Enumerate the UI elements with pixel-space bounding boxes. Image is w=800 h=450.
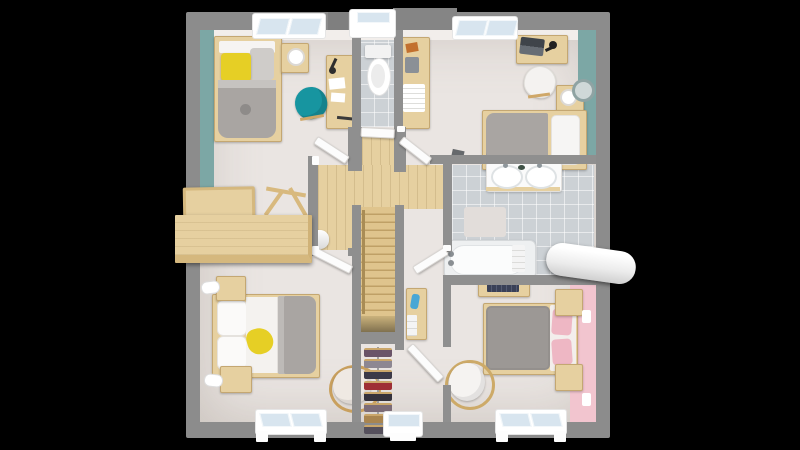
window-pane (259, 413, 291, 427)
wall-socket (582, 393, 591, 406)
round-mirror (572, 79, 595, 102)
nightstand (216, 276, 246, 301)
wall-bedroom4-left-lower (443, 385, 451, 422)
staircase-depth-shadow (361, 316, 395, 332)
tub-tray (512, 245, 525, 272)
tub-faucet (448, 260, 454, 266)
hanging-garment (364, 392, 392, 401)
window-pane (256, 18, 290, 35)
desk-paper (328, 77, 345, 90)
door-jamb (312, 156, 319, 165)
soap-dish (518, 165, 525, 170)
bed-pillow (217, 300, 247, 336)
door-wc (360, 127, 394, 139)
toilet-tank (365, 45, 391, 58)
window-sill-tab (256, 431, 268, 442)
wall-bathroom-left (443, 155, 452, 252)
hanging-garment (364, 348, 392, 357)
duvet-cushion (240, 104, 251, 115)
window-sill-tab (390, 433, 416, 441)
gray-pillow (250, 48, 274, 80)
window-sill-tab (496, 431, 508, 442)
vanity-wood-trim (486, 187, 560, 191)
table-lamp (287, 48, 305, 66)
wall-stairwell-right (395, 205, 404, 350)
landing-wood-band (318, 165, 443, 209)
window-pane (485, 20, 518, 36)
door-jamb (443, 245, 451, 251)
wall-bedroom2-bottom (430, 155, 596, 164)
clothes-rack (363, 346, 393, 420)
nightstand (555, 289, 583, 316)
stair-handrail (362, 210, 365, 314)
white-armchair (449, 363, 485, 401)
door-jamb (312, 246, 319, 255)
window-pane (357, 12, 390, 23)
window-sill-tab (314, 431, 326, 442)
shelf-item-bag (405, 57, 419, 73)
floor-plan (0, 0, 800, 450)
nightstand (555, 364, 583, 391)
window-pane (499, 413, 531, 427)
exterior-wall-bump (393, 8, 457, 32)
hanging-garment (364, 359, 392, 368)
gray-duvet (278, 296, 316, 374)
wall-socket (582, 310, 591, 323)
sink-basin (525, 165, 557, 189)
desk-lamp-base (329, 67, 336, 74)
staircase (361, 207, 395, 316)
cabinet-drawers (407, 315, 417, 336)
wall-stairwell-bottom (352, 332, 404, 344)
bed-pillow (217, 336, 247, 370)
wall-wc-left (352, 30, 361, 130)
hanging-garment (364, 370, 392, 379)
gray-duvet-dark (486, 306, 550, 370)
window-pane (288, 18, 322, 35)
hanging-garment (364, 403, 392, 412)
teal-accent-wall-left (200, 30, 214, 190)
yellow-pillow (221, 53, 251, 81)
window-pane (290, 413, 322, 427)
window-sill-tab (554, 431, 566, 442)
toilet-seat (371, 64, 385, 88)
nightstand (220, 366, 252, 393)
wall-wc-right (394, 30, 403, 130)
folded-towels (403, 84, 425, 112)
desk-paper (331, 93, 346, 103)
hanging-garment (364, 381, 392, 390)
window-pane (530, 413, 562, 427)
table-lamp-tipped (203, 373, 223, 388)
wall-stairwell-left (352, 205, 361, 422)
bath-mat (464, 207, 506, 237)
exterior-wall-segment-dark (328, 12, 348, 30)
door-jamb (397, 126, 405, 132)
window-pane (388, 414, 420, 427)
duvet-fold (218, 80, 276, 88)
wall-bedroom3-top-cap (348, 248, 361, 256)
sideboard (175, 215, 312, 263)
pink-pillow (551, 338, 573, 365)
laptop (519, 37, 545, 57)
wall-stub-right (394, 127, 406, 172)
wall-bedroom4-left-upper (443, 285, 451, 347)
window-pane (455, 20, 488, 36)
